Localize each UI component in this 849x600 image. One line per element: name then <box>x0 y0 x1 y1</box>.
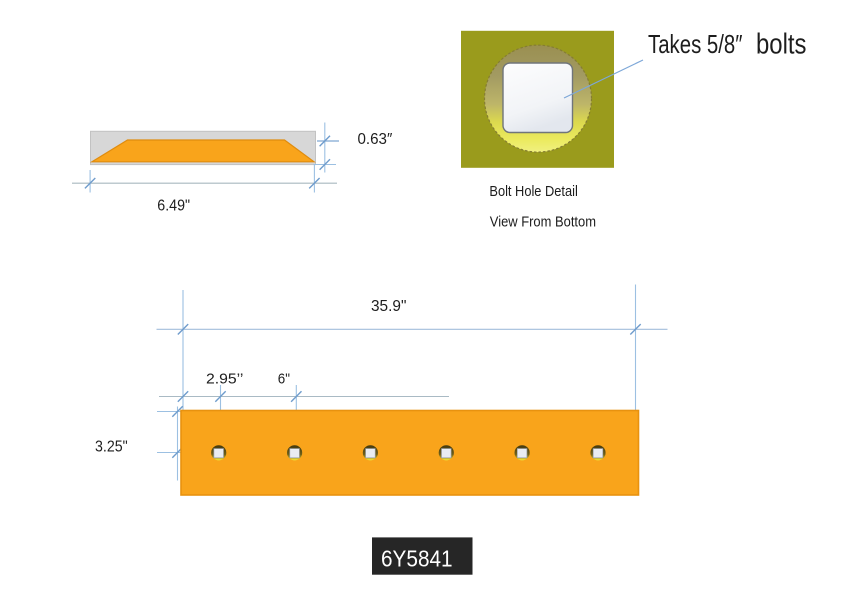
svg-text:6Y5841: 6Y5841 <box>381 545 453 571</box>
svg-text:Bolt Hole Detail: Bolt Hole Detail <box>489 184 577 200</box>
svg-text:3.25": 3.25" <box>95 439 128 456</box>
svg-text:2.95’’: 2.95’’ <box>206 371 243 388</box>
svg-text:35.9": 35.9" <box>371 298 406 315</box>
svg-text:Takes 5/8″: Takes 5/8″ <box>648 29 743 59</box>
svg-text:0.63″: 0.63″ <box>358 131 393 148</box>
svg-text:View From Bottom: View From Bottom <box>490 215 596 231</box>
svg-text:bolts: bolts <box>756 29 807 61</box>
svg-text:6.49": 6.49" <box>157 198 190 215</box>
svg-text:6": 6" <box>278 371 290 388</box>
